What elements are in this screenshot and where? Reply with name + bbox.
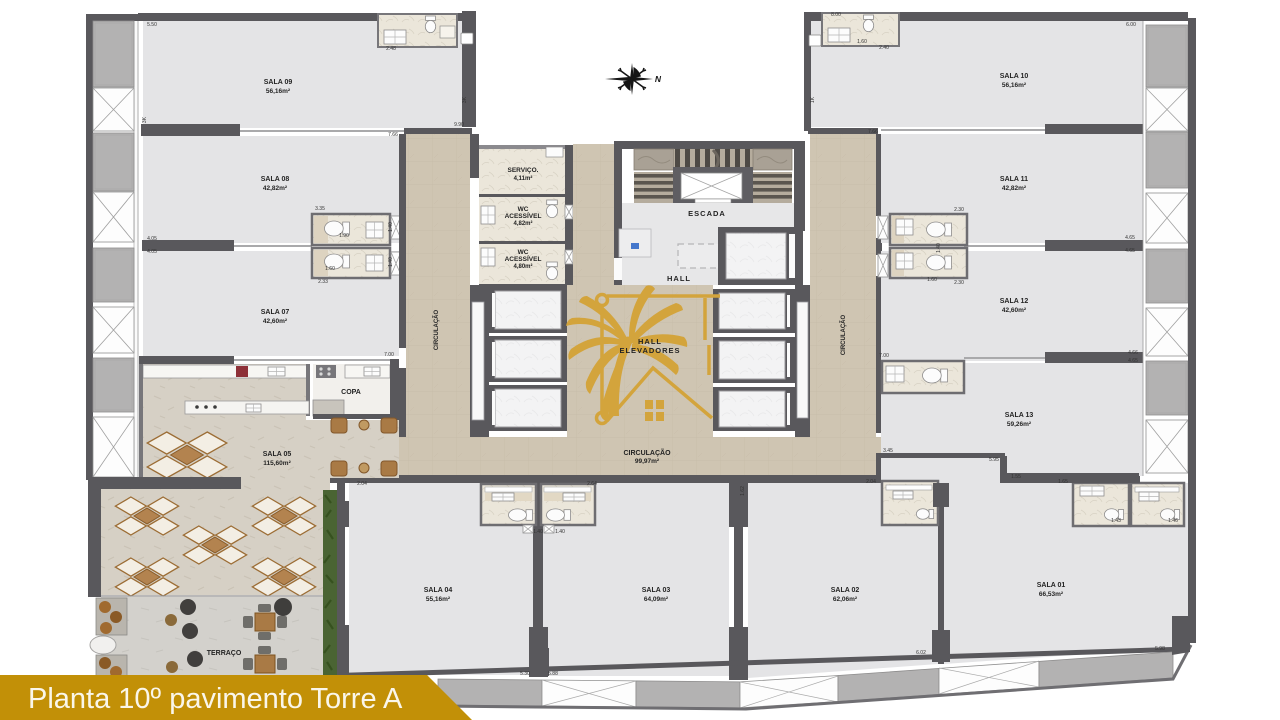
- svg-text:1.40: 1.40: [555, 529, 565, 535]
- svg-text:4.65: 4.65: [1125, 235, 1135, 241]
- svg-text:5.50: 5.50: [147, 22, 157, 28]
- svg-text:SALA 04: SALA 04: [424, 587, 453, 594]
- svg-text:SALA 12: SALA 12: [1000, 298, 1029, 305]
- svg-text:1.65: 1.65: [1058, 479, 1068, 485]
- svg-text:1.40: 1.40: [533, 529, 543, 535]
- svg-text:4.05: 4.05: [147, 236, 157, 242]
- svg-text:3.45: 3.45: [883, 448, 893, 454]
- svg-text:4,11m²: 4,11m²: [514, 175, 533, 182]
- svg-text:SALA 09: SALA 09: [264, 79, 293, 86]
- svg-text:2.33: 2.33: [318, 279, 328, 285]
- svg-text:9.90: 9.90: [454, 122, 464, 128]
- svg-text:2.64: 2.64: [587, 481, 597, 487]
- svg-text:2.30: 2.30: [954, 207, 964, 213]
- svg-text:SALA 10: SALA 10: [1000, 73, 1029, 80]
- svg-text:3K: 3K: [142, 116, 148, 123]
- svg-text:1K: 1K: [810, 96, 816, 103]
- svg-text:42,82m²: 42,82m²: [263, 185, 288, 192]
- svg-text:1.60: 1.60: [927, 277, 937, 283]
- svg-text:3.35: 3.35: [315, 206, 325, 212]
- svg-text:SALA 11: SALA 11: [1000, 176, 1028, 183]
- svg-text:5.95: 5.95: [989, 457, 999, 463]
- svg-text:7.00: 7.00: [879, 353, 889, 359]
- svg-text:Planta 10º pavimento Torre A: Planta 10º pavimento Torre A: [28, 683, 403, 715]
- svg-text:99,97m²: 99,97m²: [635, 458, 660, 465]
- svg-text:TERRAÇO: TERRAÇO: [207, 650, 242, 657]
- svg-text:4.05: 4.05: [147, 249, 157, 255]
- svg-text:8.00: 8.00: [831, 12, 841, 18]
- svg-text:CIRCULAÇÃO: CIRCULAÇÃO: [433, 310, 440, 351]
- svg-text:2.04: 2.04: [866, 479, 876, 485]
- svg-text:SALA 05: SALA 05: [263, 451, 292, 458]
- svg-text:1.43: 1.43: [1111, 518, 1121, 524]
- svg-text:6.02: 6.02: [916, 650, 926, 656]
- svg-text:4,80m²: 4,80m²: [513, 263, 532, 270]
- svg-text:SALA 02: SALA 02: [831, 587, 860, 594]
- svg-text:59,26m²: 59,26m²: [1007, 421, 1032, 428]
- svg-text:CIRCULAÇÃO: CIRCULAÇÃO: [840, 315, 847, 356]
- svg-text:WC: WC: [518, 206, 529, 213]
- svg-text:SERVIÇO.: SERVIÇO.: [508, 167, 539, 174]
- svg-text:4.65: 4.65: [1128, 358, 1138, 364]
- svg-text:COPA: COPA: [341, 389, 361, 396]
- svg-text:CIRCULAÇÃO: CIRCULAÇÃO: [623, 448, 671, 457]
- svg-text:1.90: 1.90: [339, 233, 349, 239]
- svg-text:62,06m²: 62,06m²: [833, 596, 858, 603]
- svg-text:7.00: 7.00: [384, 352, 394, 358]
- svg-text:6.00: 6.00: [1126, 22, 1136, 28]
- svg-text:66,53m²: 66,53m²: [1039, 591, 1064, 598]
- svg-text:2.40: 2.40: [879, 45, 889, 51]
- svg-text:SALA 08: SALA 08: [261, 176, 290, 183]
- svg-text:HALL: HALL: [667, 274, 691, 283]
- svg-text:4,82m²: 4,82m²: [513, 220, 532, 227]
- svg-text:5.30: 5.30: [520, 671, 530, 677]
- svg-text:1.60: 1.60: [857, 39, 867, 45]
- svg-text:ELEVADORES: ELEVADORES: [619, 346, 680, 355]
- svg-text:1.46: 1.46: [1168, 518, 1178, 524]
- svg-text:42,82m²: 42,82m²: [1002, 185, 1027, 192]
- svg-text:7.66: 7.66: [868, 129, 878, 135]
- svg-text:SALA 03: SALA 03: [642, 587, 671, 594]
- svg-text:SALA 01: SALA 01: [1037, 582, 1066, 589]
- svg-text:WC: WC: [518, 249, 529, 256]
- svg-text:4.66: 4.66: [1128, 350, 1138, 356]
- svg-text:ACESSÍVEL: ACESSÍVEL: [505, 211, 542, 220]
- svg-text:56,16m²: 56,16m²: [266, 88, 291, 95]
- svg-text:4.65: 4.65: [1125, 248, 1135, 254]
- svg-text:5.98: 5.98: [1155, 646, 1165, 652]
- svg-text:42,60m²: 42,60m²: [263, 318, 288, 325]
- svg-text:2.04: 2.04: [357, 481, 367, 487]
- svg-text:SALA 07: SALA 07: [261, 309, 290, 316]
- svg-text:56,16m²: 56,16m²: [1002, 82, 1027, 89]
- svg-text:1.62: 1.62: [740, 486, 746, 496]
- svg-text:1.55: 1.55: [1011, 474, 1021, 480]
- svg-text:N: N: [655, 74, 662, 84]
- svg-text:SALA 13: SALA 13: [1005, 412, 1034, 419]
- svg-text:ESCADA: ESCADA: [688, 209, 726, 218]
- svg-text:HALL: HALL: [638, 337, 662, 346]
- svg-text:42,60m²: 42,60m²: [1002, 307, 1027, 314]
- svg-text:55,16m²: 55,16m²: [426, 596, 451, 603]
- svg-text:1.40: 1.40: [388, 257, 394, 267]
- svg-text:ACESSÍVEL: ACESSÍVEL: [505, 254, 542, 263]
- svg-text:5.88: 5.88: [548, 671, 558, 677]
- svg-text:115,60m²: 115,60m²: [263, 460, 291, 467]
- svg-text:1.60: 1.60: [325, 266, 335, 272]
- svg-text:3K: 3K: [462, 96, 468, 103]
- svg-text:7.66: 7.66: [388, 132, 398, 138]
- svg-text:2.30: 2.30: [954, 280, 964, 286]
- svg-text:1.40: 1.40: [388, 222, 394, 232]
- svg-text:2.48: 2.48: [386, 46, 396, 52]
- svg-text:1.40: 1.40: [936, 243, 942, 253]
- svg-text:64,09m²: 64,09m²: [644, 596, 669, 603]
